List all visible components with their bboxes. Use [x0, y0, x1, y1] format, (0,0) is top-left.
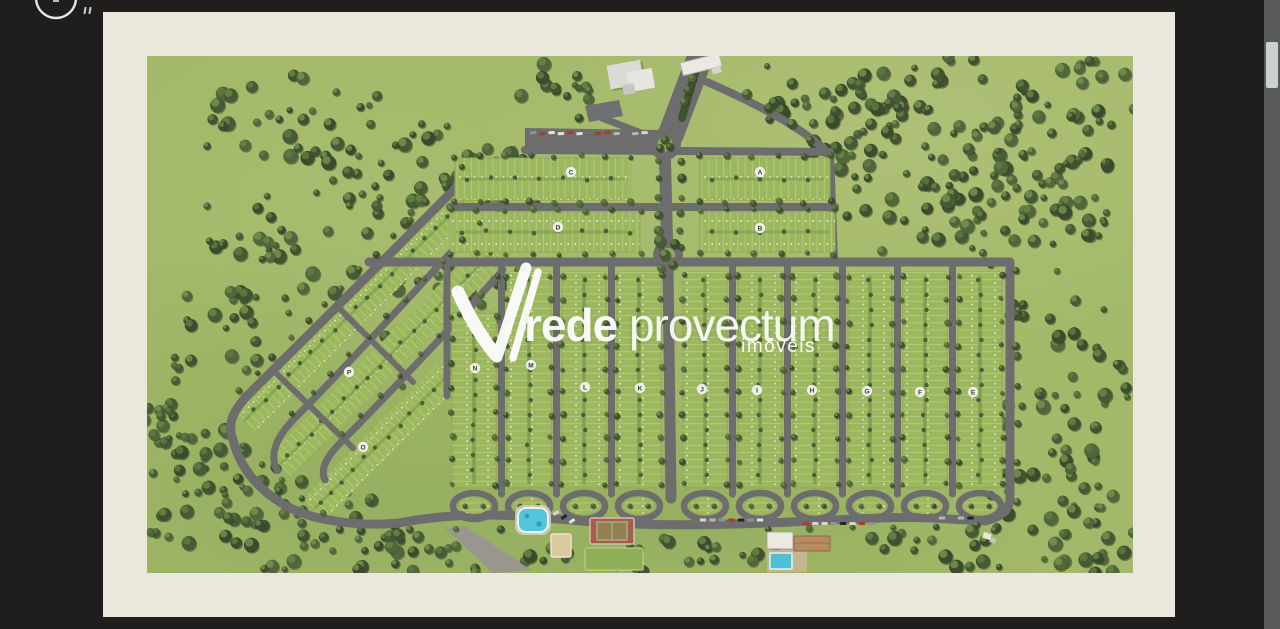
block-badge-P: P — [344, 367, 354, 377]
block-badge-H: H — [807, 385, 817, 395]
svg-text:J: J — [700, 386, 704, 393]
svg-text:M: M — [528, 362, 533, 369]
block-badge-N: N — [470, 363, 480, 373]
svg-text:F: F — [918, 389, 922, 396]
block-badge-E: E — [968, 387, 978, 397]
svg-text:L: L — [583, 384, 587, 391]
svg-text:E: E — [971, 389, 976, 396]
svg-text:N: N — [473, 365, 478, 372]
svg-text:G: G — [864, 388, 869, 395]
svg-text:C: C — [569, 169, 574, 176]
svg-text:O: O — [360, 444, 365, 451]
block-badge-O: O — [358, 442, 368, 452]
svg-text:K: K — [638, 385, 643, 392]
block-badge-G: G — [862, 386, 872, 396]
viewer-page: ABCDEFGHIJKLMNOP rede provectum imóveis — [0, 0, 1280, 629]
block-badge-A: A — [755, 167, 765, 177]
svg-text:I: I — [756, 387, 758, 394]
block-badge-M: M — [526, 360, 536, 370]
block-badge-I: I — [752, 385, 762, 395]
svg-text:A: A — [758, 169, 763, 176]
carousel-nav-icon[interactable] — [33, 0, 79, 20]
block-badge-C: C — [566, 167, 576, 177]
image-card: ABCDEFGHIJKLMNOP rede provectum imóveis — [103, 12, 1175, 617]
svg-text:H: H — [810, 387, 815, 394]
block-badge-D: D — [553, 222, 563, 232]
masterplan-image[interactable]: ABCDEFGHIJKLMNOP rede provectum imóveis — [147, 56, 1133, 573]
block-badge-F: F — [915, 387, 925, 397]
svg-text:D: D — [556, 224, 561, 231]
block-badge-K: K — [635, 383, 645, 393]
block-badge-B: B — [755, 223, 765, 233]
block-badge-J: J — [697, 384, 707, 394]
index-ticks-icon — [84, 1, 98, 9]
block-badge-L: L — [580, 382, 590, 392]
scrollbar-thumb[interactable] — [1266, 42, 1278, 88]
scrollbar-track[interactable] — [1264, 0, 1280, 629]
svg-text:B: B — [758, 225, 763, 232]
svg-text:P: P — [347, 369, 352, 376]
